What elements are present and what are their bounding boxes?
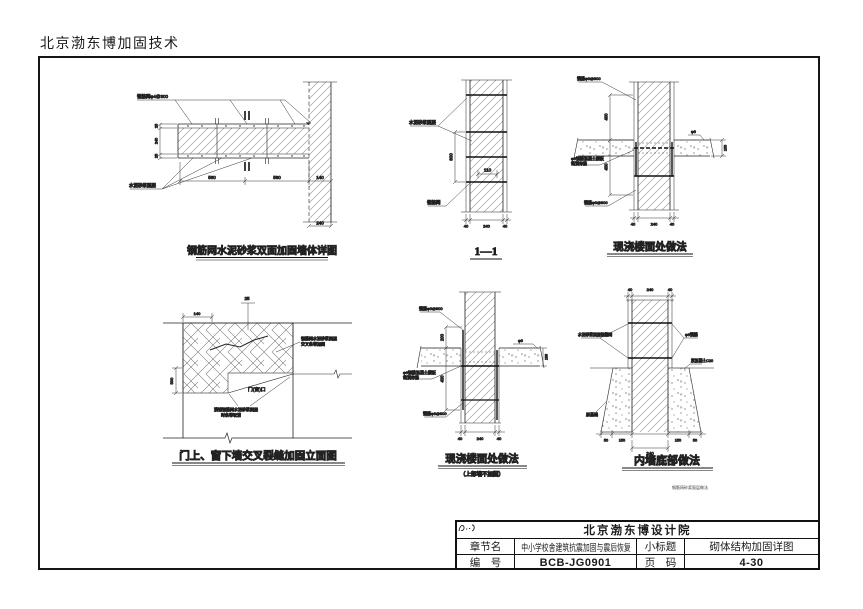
title-block-row-number: 编 号 BCB-JG0901 页 码 4-30	[457, 555, 818, 570]
drawing-sheet: 北京渤东博加固技术	[0, 0, 863, 609]
d6-dim-bottom: 50	[604, 439, 608, 443]
d6-label-left: 水泥砂浆面层钢筋网	[578, 332, 612, 337]
d6-dim-top: 40	[668, 287, 673, 292]
pagecode-label: 页 码	[637, 555, 685, 570]
d5-caption: 现浇楼面处做法	[445, 452, 519, 465]
design-institute-logo-icon	[457, 522, 477, 533]
d5-dim: 400	[440, 375, 445, 383]
d6-label-right: φ6锚筋	[685, 331, 698, 337]
d6-label-foundation: 原基础	[586, 411, 598, 417]
d3-dim: 240	[651, 222, 658, 227]
d4-label-opening: 门(窗)口	[248, 386, 266, 393]
d2-label-mesh: 钢筋网	[427, 199, 441, 206]
d6-caption: 内墙底部做法	[634, 453, 700, 467]
d6-dim-bottom: 50	[693, 439, 697, 443]
drawing-section-1-1: 水泥砂浆面层 钢筋网 600 110 40 240 40 1—1	[409, 80, 512, 259]
d2-dim: 40	[464, 224, 469, 229]
title-block: 北京渤东博设计院 章节名 中小学校舍建筑抗震加固与震后恢复 小标题 砌体结构加固…	[455, 520, 820, 570]
d4-note-right2: 交叉条带加固	[301, 341, 325, 347]
d3-dim: 40	[670, 222, 675, 227]
drawing-floor-junction: 锚筋φ6@900 φ6钢筋混凝土楼板 凿洞穿筋 锚筋φ6@900 φ6 400 …	[571, 75, 728, 257]
d1-label-mortar: 水泥砂浆面层	[129, 182, 156, 189]
d4-note-bottom1: 满铺钢筋网水泥砂浆面层	[214, 406, 258, 412]
d5-label-top: 锚筋φ6@900	[419, 305, 443, 311]
d1-caption: 钢筋网水泥砂浆双面加固墙体详图	[187, 244, 337, 257]
subtitle-value: 砌体结构加固详图	[685, 539, 818, 554]
d3-dim: 400	[604, 163, 609, 171]
drawing-floor-junction-lower-only: 锚筋φ6@900 φ6钢筋混凝土楼板 凿洞穿筋 锚筋φ6@900 φ6 200 …	[403, 292, 549, 478]
d2-dim: 240	[483, 224, 490, 229]
d5-label-slab: φ6	[518, 338, 524, 343]
d5-dim: 200	[440, 333, 445, 341]
d5-dim: 40	[458, 436, 463, 441]
d4-label-top: 25	[244, 296, 250, 301]
d4-dim-top: 140	[194, 311, 201, 316]
d1-dim: 240	[316, 221, 324, 226]
title-block-row-chapter: 章节名 中小学校舍建筑抗震加固与震后恢复 小标题 砌体结构加固详图	[457, 539, 818, 555]
d3-label-mid2: 凿洞穿筋	[571, 160, 587, 166]
number-label: 编 号	[457, 555, 515, 570]
d5-dim: 240	[477, 436, 484, 441]
chapter-value: 中小学校舍建筑抗震加固与震后恢复	[515, 539, 637, 554]
d6-dim-bottom: 150	[675, 439, 681, 443]
d4-caption: 门上、窗下墙交叉裂缝加固立面图	[179, 449, 337, 462]
d3-caption: 现浇楼面处做法	[613, 240, 687, 253]
d1-dim: 240	[155, 138, 159, 144]
chapter-value-text: 中小学校舍建筑抗震加固与震后恢复	[521, 540, 630, 554]
d5-dim: 40	[497, 436, 502, 441]
d3-label-bottom: 锚筋φ6@900	[584, 199, 608, 205]
d3-dim: 100	[724, 145, 728, 151]
d3-label-slab: φ6	[691, 129, 697, 134]
d4-note-bottom2: 时条带取消	[221, 412, 241, 418]
chapter-label: 章节名	[457, 539, 515, 554]
d3-label-top: 锚筋φ6@900	[577, 75, 601, 81]
drawing-number-value: BCB-JG0901	[515, 555, 637, 570]
drawing-wall-plan-detail: 钢筋网φ4@300 水泥砂浆面层 560 560 140 240 25 240 …	[129, 82, 337, 260]
d3-dim: 40	[631, 222, 636, 227]
d5-subcaption: （上部墙不加固）	[460, 470, 504, 478]
d2-caption: 1—1	[475, 246, 498, 258]
drawings-canvas: 钢筋网φ4@300 水泥砂浆面层 560 560 140 240 25 240 …	[0, 0, 863, 609]
d4-note-right1: 钢筋网水泥砂浆面层	[301, 335, 337, 341]
d5-label-bottom: 锚筋φ6@900	[423, 410, 447, 416]
pagecode-value: 4-30	[685, 555, 818, 570]
title-block-company-row: 北京渤东博设计院	[457, 522, 818, 539]
d5-dim: 100	[545, 354, 549, 360]
drawing-wall-base-detail: 40 240 40 水泥砂浆面层钢筋网 φ6锚筋 素混凝土C20 原基础 50 …	[578, 287, 714, 471]
d2-label-mortar: 水泥砂浆面层	[409, 119, 436, 126]
d2-dim: 40	[503, 224, 508, 229]
sheet-corner-note: 钢筋网砂浆面层做法	[672, 484, 708, 490]
d1-dim: 25	[155, 154, 159, 158]
d1-label-mesh: 钢筋网φ4@300	[137, 93, 168, 100]
d6-dim-top: 240	[647, 287, 654, 292]
d4-dim-left: 500	[169, 377, 174, 384]
d6-label-ground: 素混凝土C20	[691, 358, 713, 363]
subtitle-label: 小标题	[637, 539, 685, 554]
d6-dim-top: 40	[628, 287, 633, 292]
d6-dim-bottom: 150	[619, 439, 625, 443]
d2-dim: 110	[484, 168, 492, 173]
d1-dim: 25	[155, 124, 159, 128]
drawing-cross-strip-elevation: 25 140 500 钢筋网水泥砂浆面层 交叉条带加固 满铺钢筋网水泥砂浆面层 …	[163, 296, 352, 466]
d1-dim: 140	[316, 175, 324, 180]
d2-dim: 600	[449, 153, 454, 161]
d1-dim: 560	[273, 175, 281, 180]
d3-dim: 400	[604, 113, 609, 121]
design-institute-name: 北京渤东博设计院	[584, 522, 692, 538]
d5-label-mid2: 凿洞穿筋	[403, 374, 419, 380]
d1-dim: 560	[208, 175, 216, 180]
